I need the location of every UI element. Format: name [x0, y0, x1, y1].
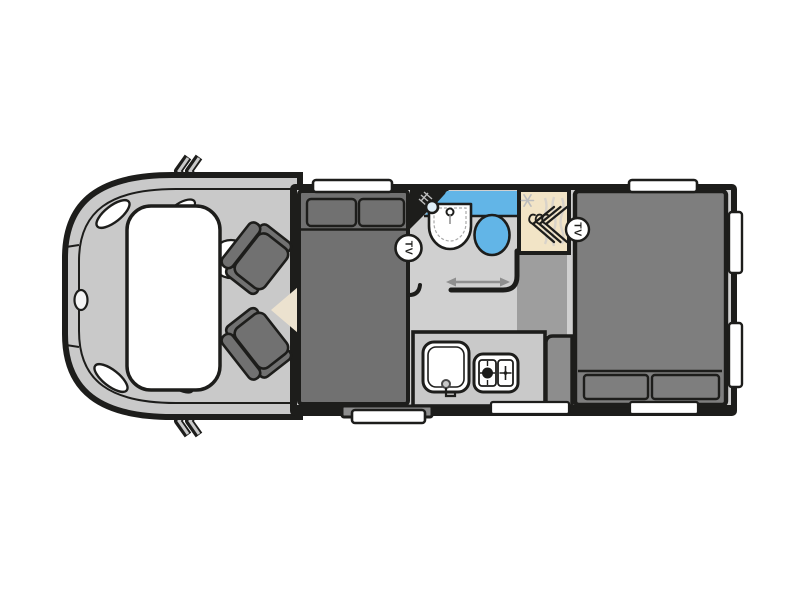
tv-badge-rear-label: TV [572, 222, 584, 236]
rear-bed [575, 191, 726, 405]
rear-bed-pillow-right [652, 375, 719, 399]
rear-bed-base [575, 191, 726, 405]
rear-bed-pillow-left [584, 375, 648, 399]
windscreen [127, 206, 220, 390]
front-bed-pillow-left [307, 199, 356, 226]
front-bed [299, 191, 408, 404]
window-top-front [313, 180, 392, 192]
entry-door-opening [491, 402, 569, 414]
entry-step-icon [342, 406, 432, 423]
rear-dressing-floor [517, 252, 567, 335]
tv-badge-front-label: TV [403, 241, 415, 255]
tv-badge-front: TV [396, 235, 422, 261]
cab-area [65, 175, 300, 417]
toilet-icon [475, 215, 510, 255]
window-bottom-rear [630, 402, 698, 414]
vehicle-badge-icon [75, 290, 88, 310]
hob-icon [474, 354, 518, 392]
window-top-rear [629, 180, 697, 192]
kitchen [413, 332, 545, 406]
kitchen-cabinet [546, 336, 572, 406]
window-rear-bottom [729, 323, 742, 387]
window-rear-top [729, 212, 742, 273]
tv-badge-rear: TV [566, 218, 589, 241]
floorplan-canvas: TV TV [0, 0, 800, 600]
wardrobe [519, 190, 569, 253]
front-bed-pillow-right [359, 199, 404, 226]
kitchen-sink-icon [423, 342, 469, 396]
